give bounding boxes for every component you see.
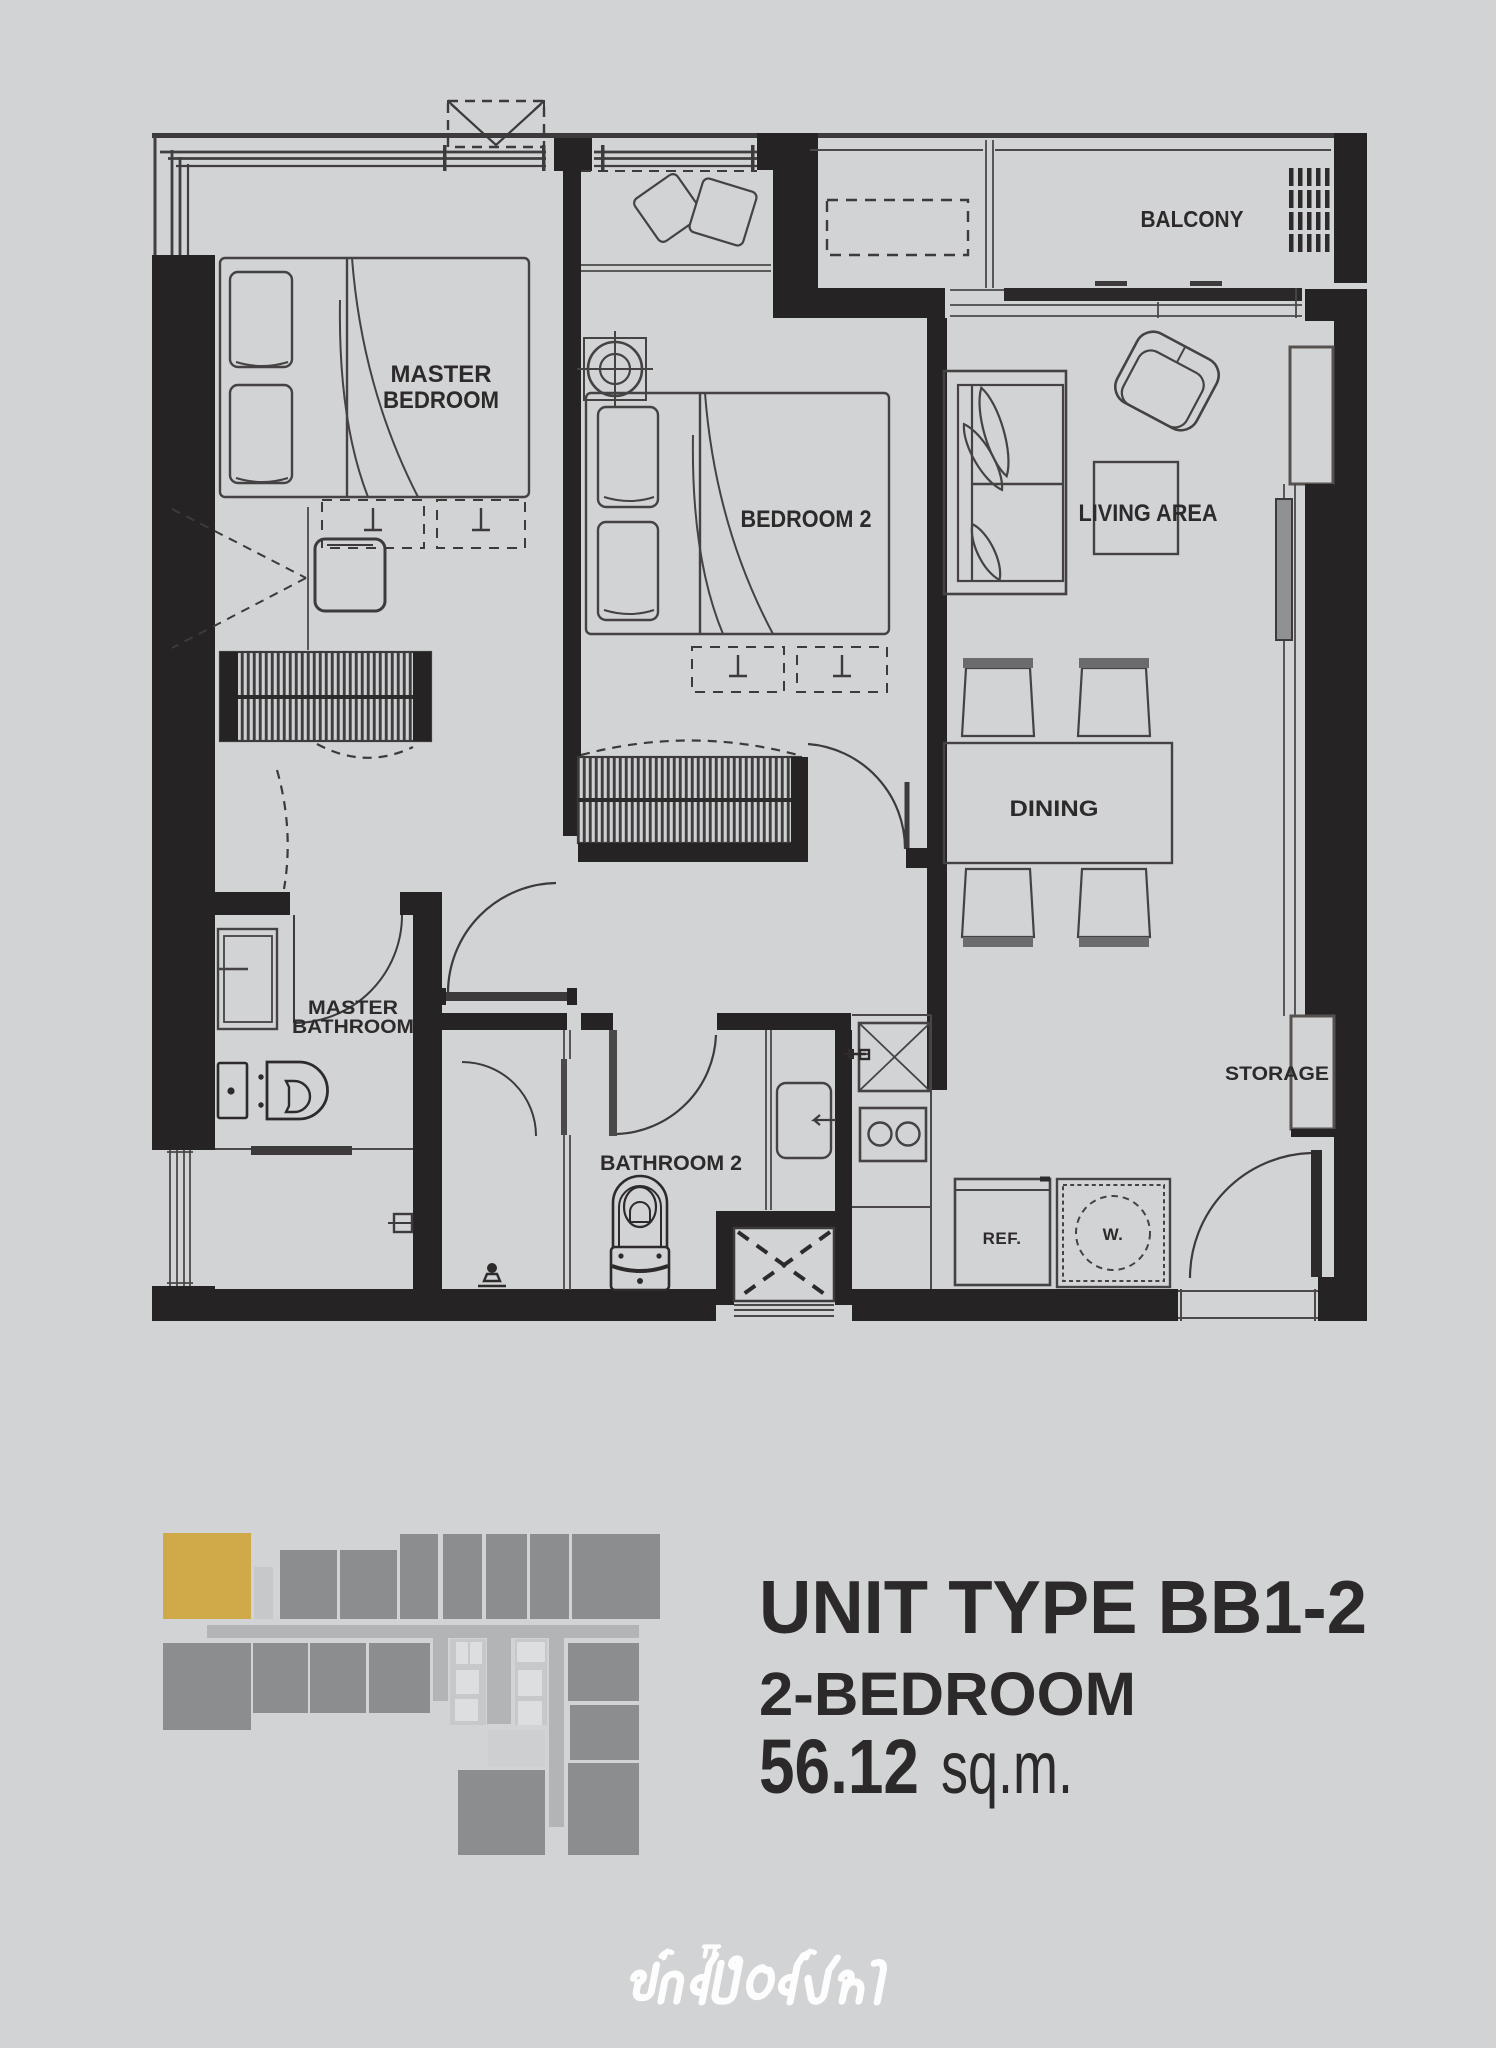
svg-text:BATHROOM 2: BATHROOM 2 [600,1152,742,1175]
svg-text:BEDROOM: BEDROOM [383,387,499,414]
svg-text:2-BEDROOM: 2-BEDROOM [759,1660,1136,1728]
svg-text:BEDROOM 2: BEDROOM 2 [741,506,872,533]
svg-text:MASTER: MASTER [391,361,492,388]
svg-text:LIVING AREA: LIVING AREA [1079,500,1218,527]
svg-text:sq.m.: sq.m. [941,1726,1073,1809]
svg-text:DINING: DINING [1010,796,1099,821]
svg-text:UNIT TYPE BB1-2: UNIT TYPE BB1-2 [759,1565,1367,1649]
svg-text:MASTER: MASTER [308,998,398,1019]
svg-text:BALCONY: BALCONY [1141,206,1244,232]
svg-text:BATHROOM: BATHROOM [292,1017,414,1038]
svg-text:REF.: REF. [983,1229,1022,1248]
svg-text:56.12: 56.12 [759,1724,919,1810]
svg-text:W.: W. [1103,1225,1124,1244]
svg-text:STORAGE: STORAGE [1225,1064,1329,1085]
